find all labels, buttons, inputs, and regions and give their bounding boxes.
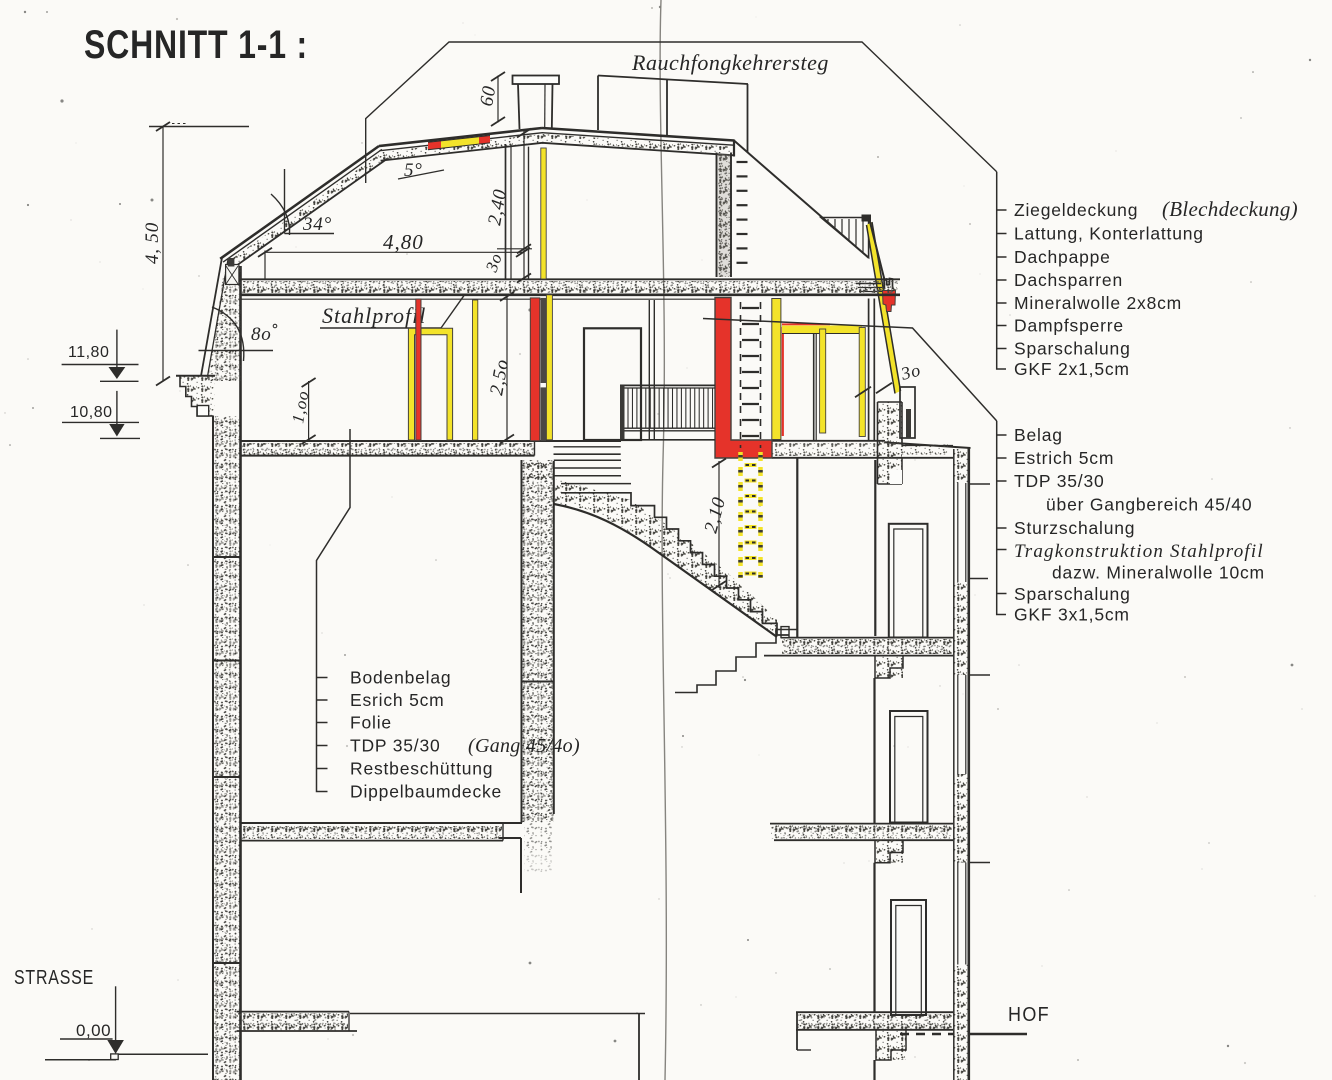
svg-text:Sparschalung: Sparschalung	[1014, 584, 1131, 604]
svg-text:dazw. Mineralwolle 10cm: dazw. Mineralwolle 10cm	[1052, 563, 1265, 583]
svg-text:Estrich 5cm: Estrich 5cm	[1014, 448, 1114, 468]
svg-text:10,80: 10,80	[70, 404, 113, 421]
svg-text:TDP 35/30: TDP 35/30	[1014, 471, 1105, 491]
svg-text:STRASSE: STRASSE	[14, 967, 94, 989]
svg-text:Dachsparren: Dachsparren	[1014, 270, 1123, 290]
svg-text:Lattung, Konterlattung: Lattung, Konterlattung	[1014, 224, 1204, 244]
svg-text:Sturzschalung: Sturzschalung	[1014, 518, 1135, 538]
svg-text:60: 60	[476, 84, 500, 108]
svg-text:4, 50: 4, 50	[142, 222, 163, 264]
svg-text:SCHNITT 1-1 :: SCHNITT 1-1 :	[84, 23, 308, 67]
svg-text:Restbeschüttung: Restbeschüttung	[350, 759, 493, 779]
svg-text:HOF: HOF	[1008, 1004, 1050, 1026]
svg-text:Esrich 5cm: Esrich 5cm	[350, 690, 445, 710]
svg-text:(Blechdeckung): (Blechdeckung)	[1162, 197, 1298, 221]
svg-text:0,00: 0,00	[76, 1021, 111, 1040]
svg-text:8o: 8o	[251, 324, 272, 345]
svg-text:Mineralwolle 2x8cm: Mineralwolle 2x8cm	[1014, 293, 1182, 313]
svg-text:Belag: Belag	[1014, 425, 1063, 445]
svg-text:4,80: 4,80	[383, 230, 424, 254]
svg-text:Stahlprofil: Stahlprofil	[322, 303, 426, 328]
svg-text:34°: 34°	[302, 214, 332, 235]
svg-text:GKF 3x1,5cm: GKF 3x1,5cm	[1014, 605, 1130, 625]
svg-text:GKF 2x1,5cm: GKF 2x1,5cm	[1014, 359, 1130, 379]
svg-text:Folie: Folie	[350, 713, 392, 733]
svg-text:über Gangbereich 45/40: über Gangbereich 45/40	[1046, 495, 1252, 515]
svg-text:11,80: 11,80	[68, 344, 109, 361]
svg-text:Rauchfongkehrersteg: Rauchfongkehrersteg	[631, 50, 829, 75]
svg-text:Dampfsperre: Dampfsperre	[1014, 316, 1124, 336]
svg-text:TDP 35/30: TDP 35/30	[350, 736, 441, 756]
svg-text:(Gang 45/4o): (Gang 45/4o)	[468, 735, 580, 757]
svg-text:Ziegeldeckung: Ziegeldeckung	[1014, 200, 1138, 220]
svg-text:Dippelbaumdecke: Dippelbaumdecke	[350, 782, 502, 802]
svg-text:Tragkonstruktion Stahlprofil: Tragkonstruktion Stahlprofil	[1014, 541, 1264, 562]
svg-text:Dachpappe: Dachpappe	[1014, 247, 1111, 267]
svg-text:Bodenbelag: Bodenbelag	[350, 668, 451, 688]
svg-text:Sparschalung: Sparschalung	[1014, 339, 1131, 359]
